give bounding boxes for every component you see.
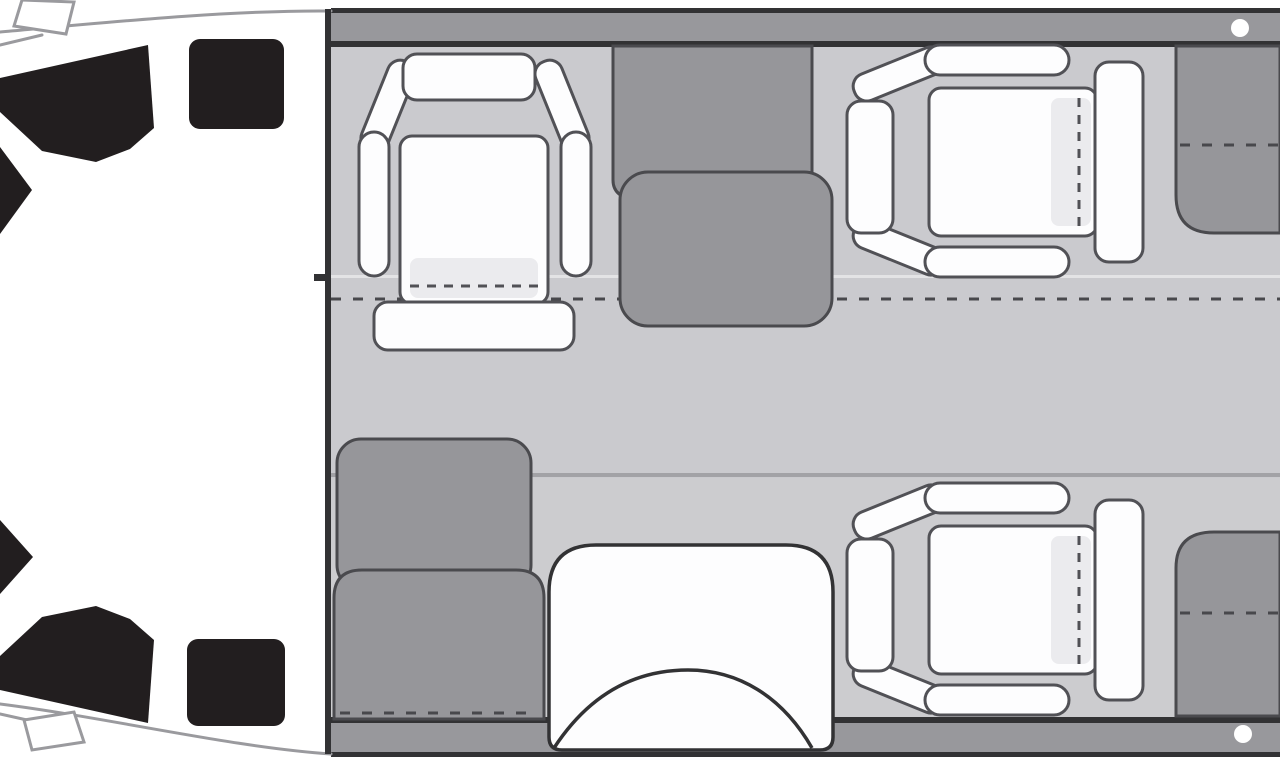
aft-left-cabinet — [334, 439, 544, 719]
forward-cabinet — [613, 46, 832, 326]
propeller-blade-bottom — [24, 712, 84, 750]
crew-seat-top — [189, 39, 284, 129]
forward-cabinet-lower-lobe — [620, 172, 832, 326]
cockpit-bulkhead — [325, 9, 331, 754]
window-marker-top — [1231, 19, 1249, 37]
right-cabinet-top — [1176, 46, 1280, 233]
right-cabinet-bottom-body — [1176, 532, 1280, 716]
aft-bench-seat — [549, 545, 833, 750]
window-marker-bottom — [1234, 725, 1252, 743]
cockpit-console-bottom — [0, 606, 154, 723]
cockpit — [0, 0, 331, 754]
right-cabinet-bottom — [1176, 532, 1280, 716]
cockpit-wedge-top — [0, 147, 32, 234]
windshield-line-top — [0, 35, 42, 45]
cockpit-console-top — [0, 45, 154, 162]
right-cabinet-top-body — [1176, 46, 1280, 233]
propeller-blade-top — [14, 0, 74, 34]
aircraft-floorplan — [0, 0, 1280, 768]
aft-left-cabinet-lower-lobe — [334, 570, 544, 719]
crew-seat-bottom — [187, 639, 285, 726]
cockpit-wedge-bottom — [0, 520, 33, 594]
aft-left-cabinet-upper-lobe — [337, 439, 531, 589]
